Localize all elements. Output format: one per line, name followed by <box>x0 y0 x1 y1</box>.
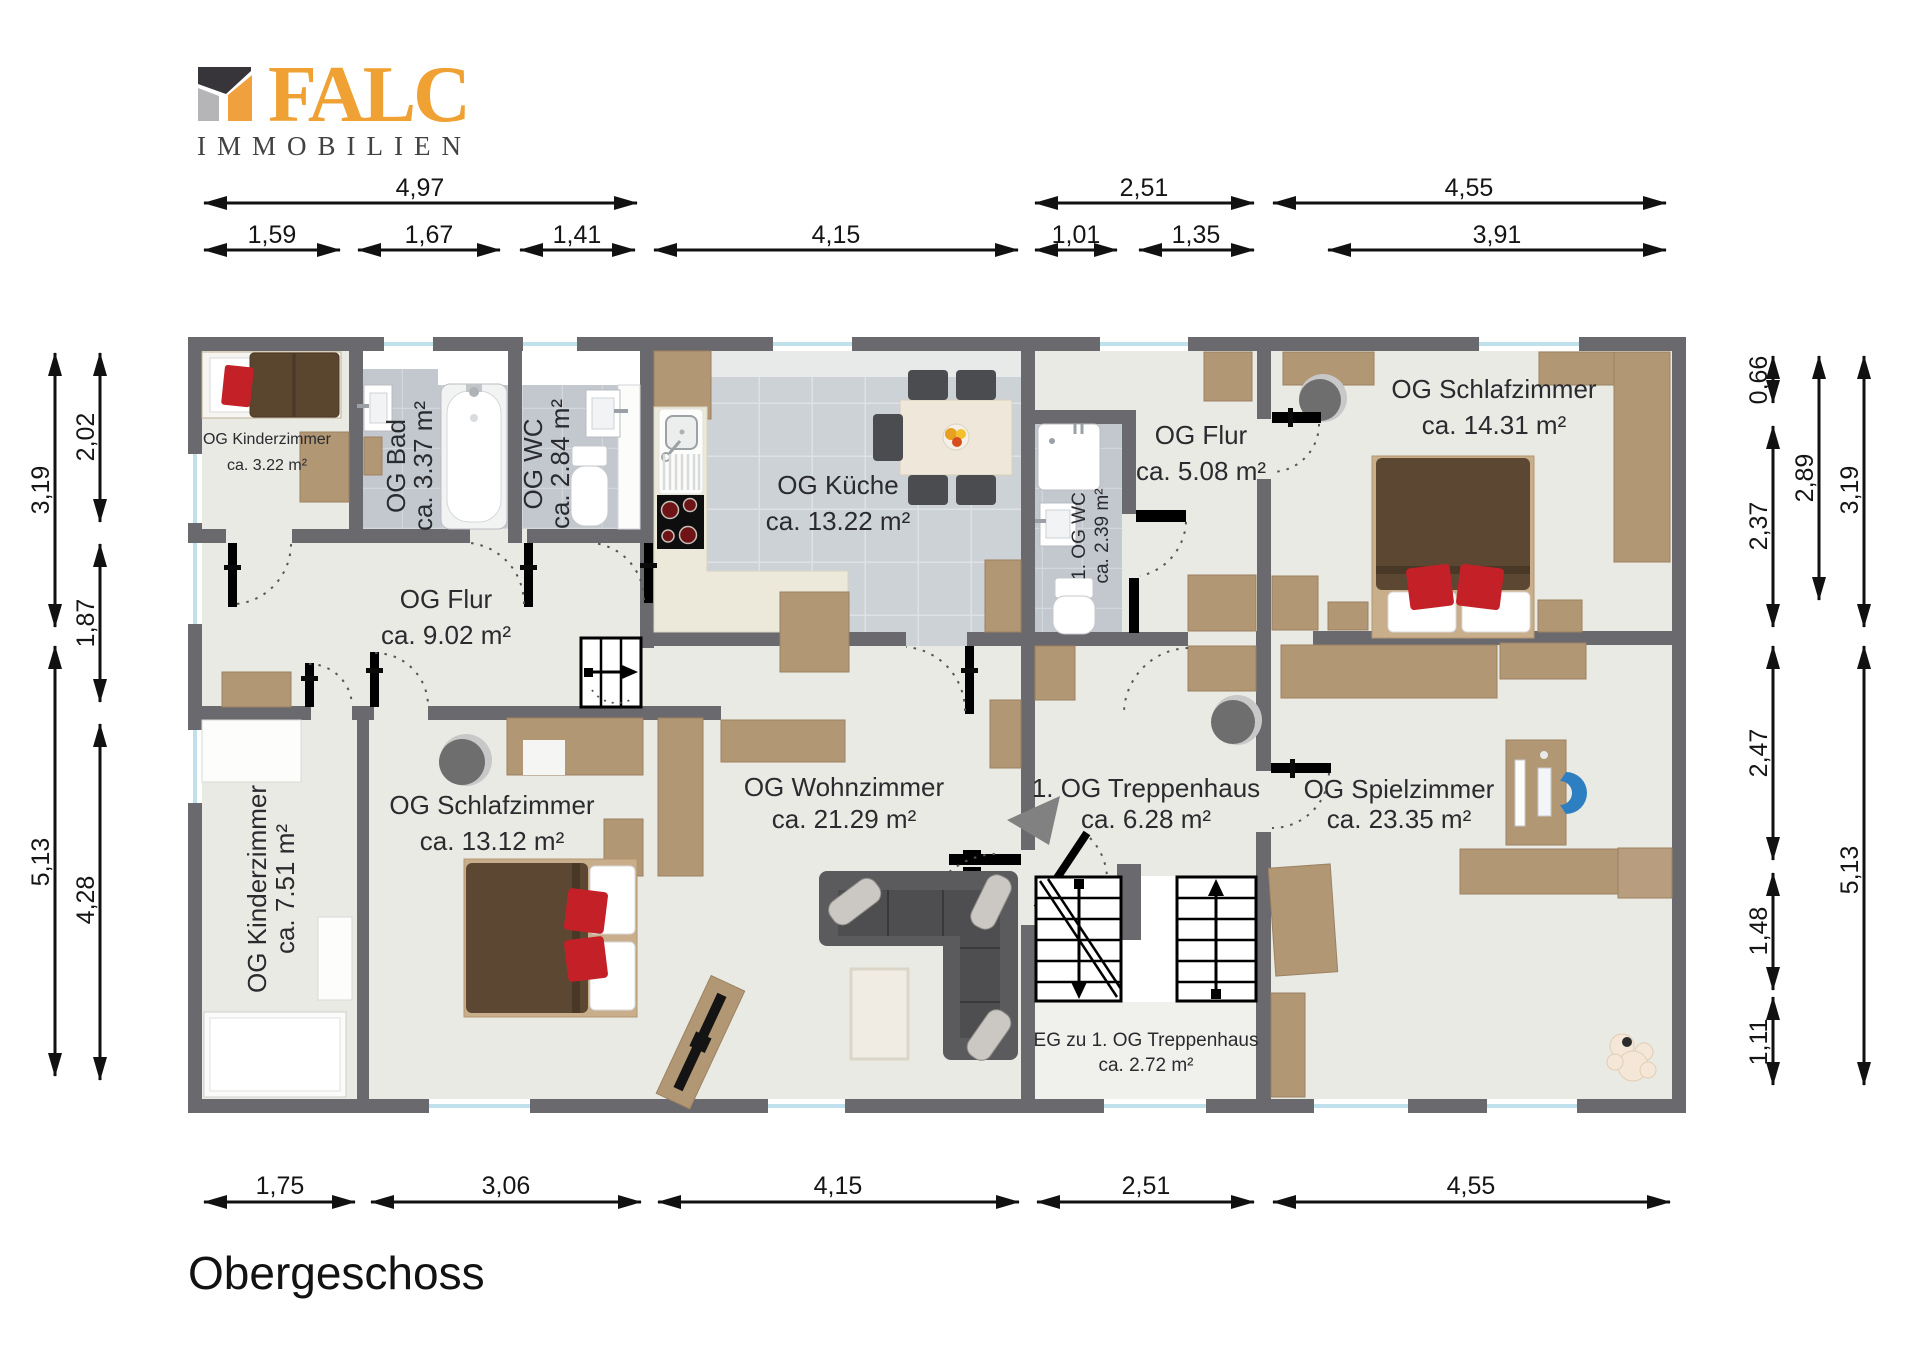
svg-text:2,02: 2,02 <box>72 413 100 462</box>
svg-text:ca. 5.08 m²: ca. 5.08 m² <box>1136 456 1266 486</box>
svg-text:2,37: 2,37 <box>1745 502 1773 551</box>
svg-text:OG Flur: OG Flur <box>400 584 493 614</box>
svg-text:3,19: 3,19 <box>27 466 55 515</box>
svg-text:EG zu 1. OG Treppenhaus: EG zu 1. OG Treppenhaus <box>1034 1030 1259 1051</box>
svg-text:ca. 21.29 m²: ca. 21.29 m² <box>772 804 917 834</box>
svg-text:1,75: 1,75 <box>256 1172 305 1200</box>
svg-text:3,19: 3,19 <box>1836 466 1864 515</box>
svg-text:5,13: 5,13 <box>27 838 55 887</box>
svg-text:2,51: 2,51 <box>1120 174 1169 202</box>
svg-text:4,55: 4,55 <box>1445 174 1494 202</box>
svg-text:ca. 2.72 m²: ca. 2.72 m² <box>1098 1055 1193 1076</box>
svg-text:OG Wohnzimmer: OG Wohnzimmer <box>744 772 945 802</box>
svg-text:1,67: 1,67 <box>405 221 454 249</box>
svg-text:OG Schlafzimmer: OG Schlafzimmer <box>389 790 594 820</box>
svg-text:ca. 3.37 m²: ca. 3.37 m² <box>408 401 438 531</box>
svg-text:1,59: 1,59 <box>248 221 297 249</box>
svg-text:ca. 13.22 m²: ca. 13.22 m² <box>766 506 911 536</box>
svg-text:OG Kinderzimmer: OG Kinderzimmer <box>203 431 332 448</box>
svg-text:ca. 3.22 m²: ca. 3.22 m² <box>227 457 308 474</box>
svg-text:2,89: 2,89 <box>1791 454 1819 503</box>
svg-text:ca. 23.35 m²: ca. 23.35 m² <box>1327 804 1472 834</box>
svg-text:ca. 14.31 m²: ca. 14.31 m² <box>1422 410 1567 440</box>
svg-text:ca. 7.51 m²: ca. 7.51 m² <box>270 824 300 954</box>
svg-text:1. OG WC: 1. OG WC <box>1069 492 1090 580</box>
svg-text:5,13: 5,13 <box>1836 846 1864 895</box>
svg-text:ca. 13.12 m²: ca. 13.12 m² <box>420 826 565 856</box>
svg-text:ca. 9.02 m²: ca. 9.02 m² <box>381 620 511 650</box>
svg-text:OG Bad: OG Bad <box>381 419 411 513</box>
svg-text:1,35: 1,35 <box>1172 221 1221 249</box>
svg-text:FALC: FALC <box>268 51 468 139</box>
svg-text:4,15: 4,15 <box>814 1172 863 1200</box>
svg-text:1,01: 1,01 <box>1052 221 1101 249</box>
svg-text:OG Kinderzimmer: OG Kinderzimmer <box>242 785 272 993</box>
svg-text:1,48: 1,48 <box>1745 907 1773 956</box>
svg-text:IMMOBILIEN: IMMOBILIEN <box>197 131 472 161</box>
svg-text:OG WC: OG WC <box>518 419 548 510</box>
svg-text:2,47: 2,47 <box>1745 729 1773 778</box>
svg-text:4,28: 4,28 <box>72 876 100 925</box>
svg-text:OG Küche: OG Küche <box>777 470 898 500</box>
svg-text:4,97: 4,97 <box>396 174 445 202</box>
svg-text:1,87: 1,87 <box>72 599 100 648</box>
svg-text:ca. 2.84 m²: ca. 2.84 m² <box>545 399 575 529</box>
svg-text:Obergeschoss: Obergeschoss <box>188 1247 485 1299</box>
svg-text:3,06: 3,06 <box>482 1172 531 1200</box>
svg-text:1,41: 1,41 <box>553 221 602 249</box>
svg-text:3,91: 3,91 <box>1473 221 1522 249</box>
svg-text:4,15: 4,15 <box>812 221 861 249</box>
svg-text:OG Flur: OG Flur <box>1155 420 1248 450</box>
svg-text:1,11: 1,11 <box>1745 1019 1773 1066</box>
svg-text:1. OG Treppenhaus: 1. OG Treppenhaus <box>1032 773 1260 803</box>
svg-text:4,55: 4,55 <box>1447 1172 1496 1200</box>
svg-text:OG Schlafzimmer: OG Schlafzimmer <box>1391 374 1596 404</box>
svg-text:ca. 2.39 m²: ca. 2.39 m² <box>1092 488 1113 583</box>
svg-text:ca. 6.28 m²: ca. 6.28 m² <box>1081 804 1211 834</box>
svg-text:2,51: 2,51 <box>1122 1172 1171 1200</box>
svg-text:OG Spielzimmer: OG Spielzimmer <box>1304 774 1495 804</box>
svg-text:0,66: 0,66 <box>1745 356 1773 405</box>
